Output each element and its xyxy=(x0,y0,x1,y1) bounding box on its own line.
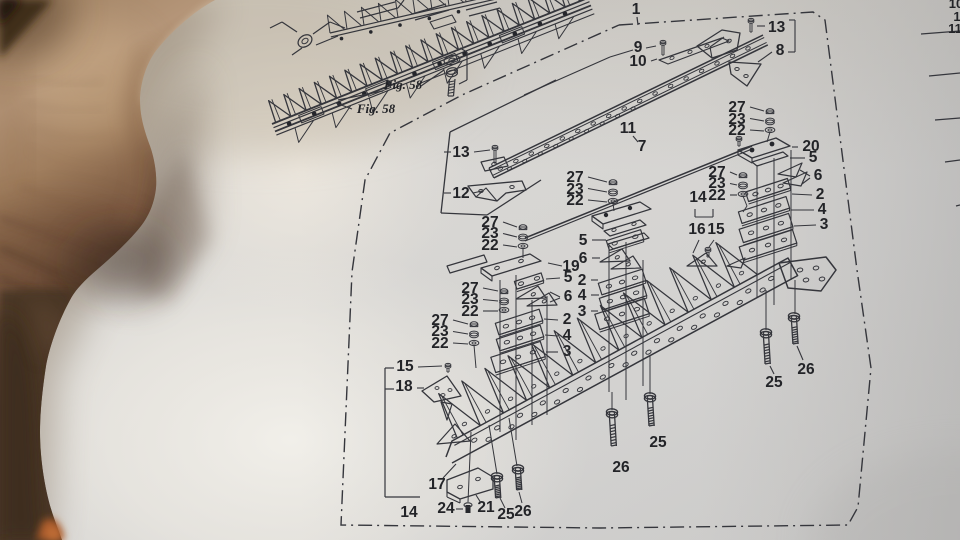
svg-text:12: 12 xyxy=(452,185,469,202)
svg-text:13: 13 xyxy=(768,19,786,36)
svg-text:22: 22 xyxy=(461,303,478,320)
svg-text:6: 6 xyxy=(814,167,823,184)
svg-text:16: 16 xyxy=(688,221,706,238)
svg-text:7: 7 xyxy=(638,138,647,155)
svg-text:1: 1 xyxy=(632,1,641,18)
svg-text:25: 25 xyxy=(765,374,783,391)
svg-text:22: 22 xyxy=(566,192,583,209)
svg-text:25: 25 xyxy=(649,434,667,451)
svg-text:26: 26 xyxy=(514,503,532,520)
svg-text:5: 5 xyxy=(809,149,818,166)
svg-text:11: 11 xyxy=(948,21,960,36)
svg-text:17: 17 xyxy=(428,476,445,493)
svg-text:Fig. 58: Fig. 58 xyxy=(383,77,423,92)
svg-text:15: 15 xyxy=(396,358,414,375)
svg-text:6: 6 xyxy=(564,288,573,305)
svg-text:22: 22 xyxy=(481,237,498,254)
svg-text:6: 6 xyxy=(579,250,588,267)
svg-text:5: 5 xyxy=(564,269,573,286)
svg-text:4: 4 xyxy=(578,287,587,304)
svg-text:10: 10 xyxy=(629,53,646,70)
svg-text:3: 3 xyxy=(820,216,829,233)
svg-text:26: 26 xyxy=(797,361,815,378)
svg-text:13: 13 xyxy=(452,144,470,161)
svg-text:14: 14 xyxy=(689,189,707,206)
svg-text:5: 5 xyxy=(579,232,588,249)
svg-text:18: 18 xyxy=(395,378,413,395)
svg-text:2: 2 xyxy=(563,311,572,328)
svg-text:15: 15 xyxy=(707,221,725,238)
svg-text:22: 22 xyxy=(431,335,448,352)
svg-text:11: 11 xyxy=(620,120,637,137)
svg-text:26: 26 xyxy=(612,459,630,476)
svg-text:22: 22 xyxy=(708,187,725,204)
svg-text:14: 14 xyxy=(400,504,418,521)
svg-text:25: 25 xyxy=(497,506,515,523)
svg-text:8: 8 xyxy=(776,42,785,59)
svg-text:3: 3 xyxy=(578,303,587,320)
svg-text:24: 24 xyxy=(437,500,455,517)
svg-text:Fig. 58: Fig. 58 xyxy=(356,101,396,116)
